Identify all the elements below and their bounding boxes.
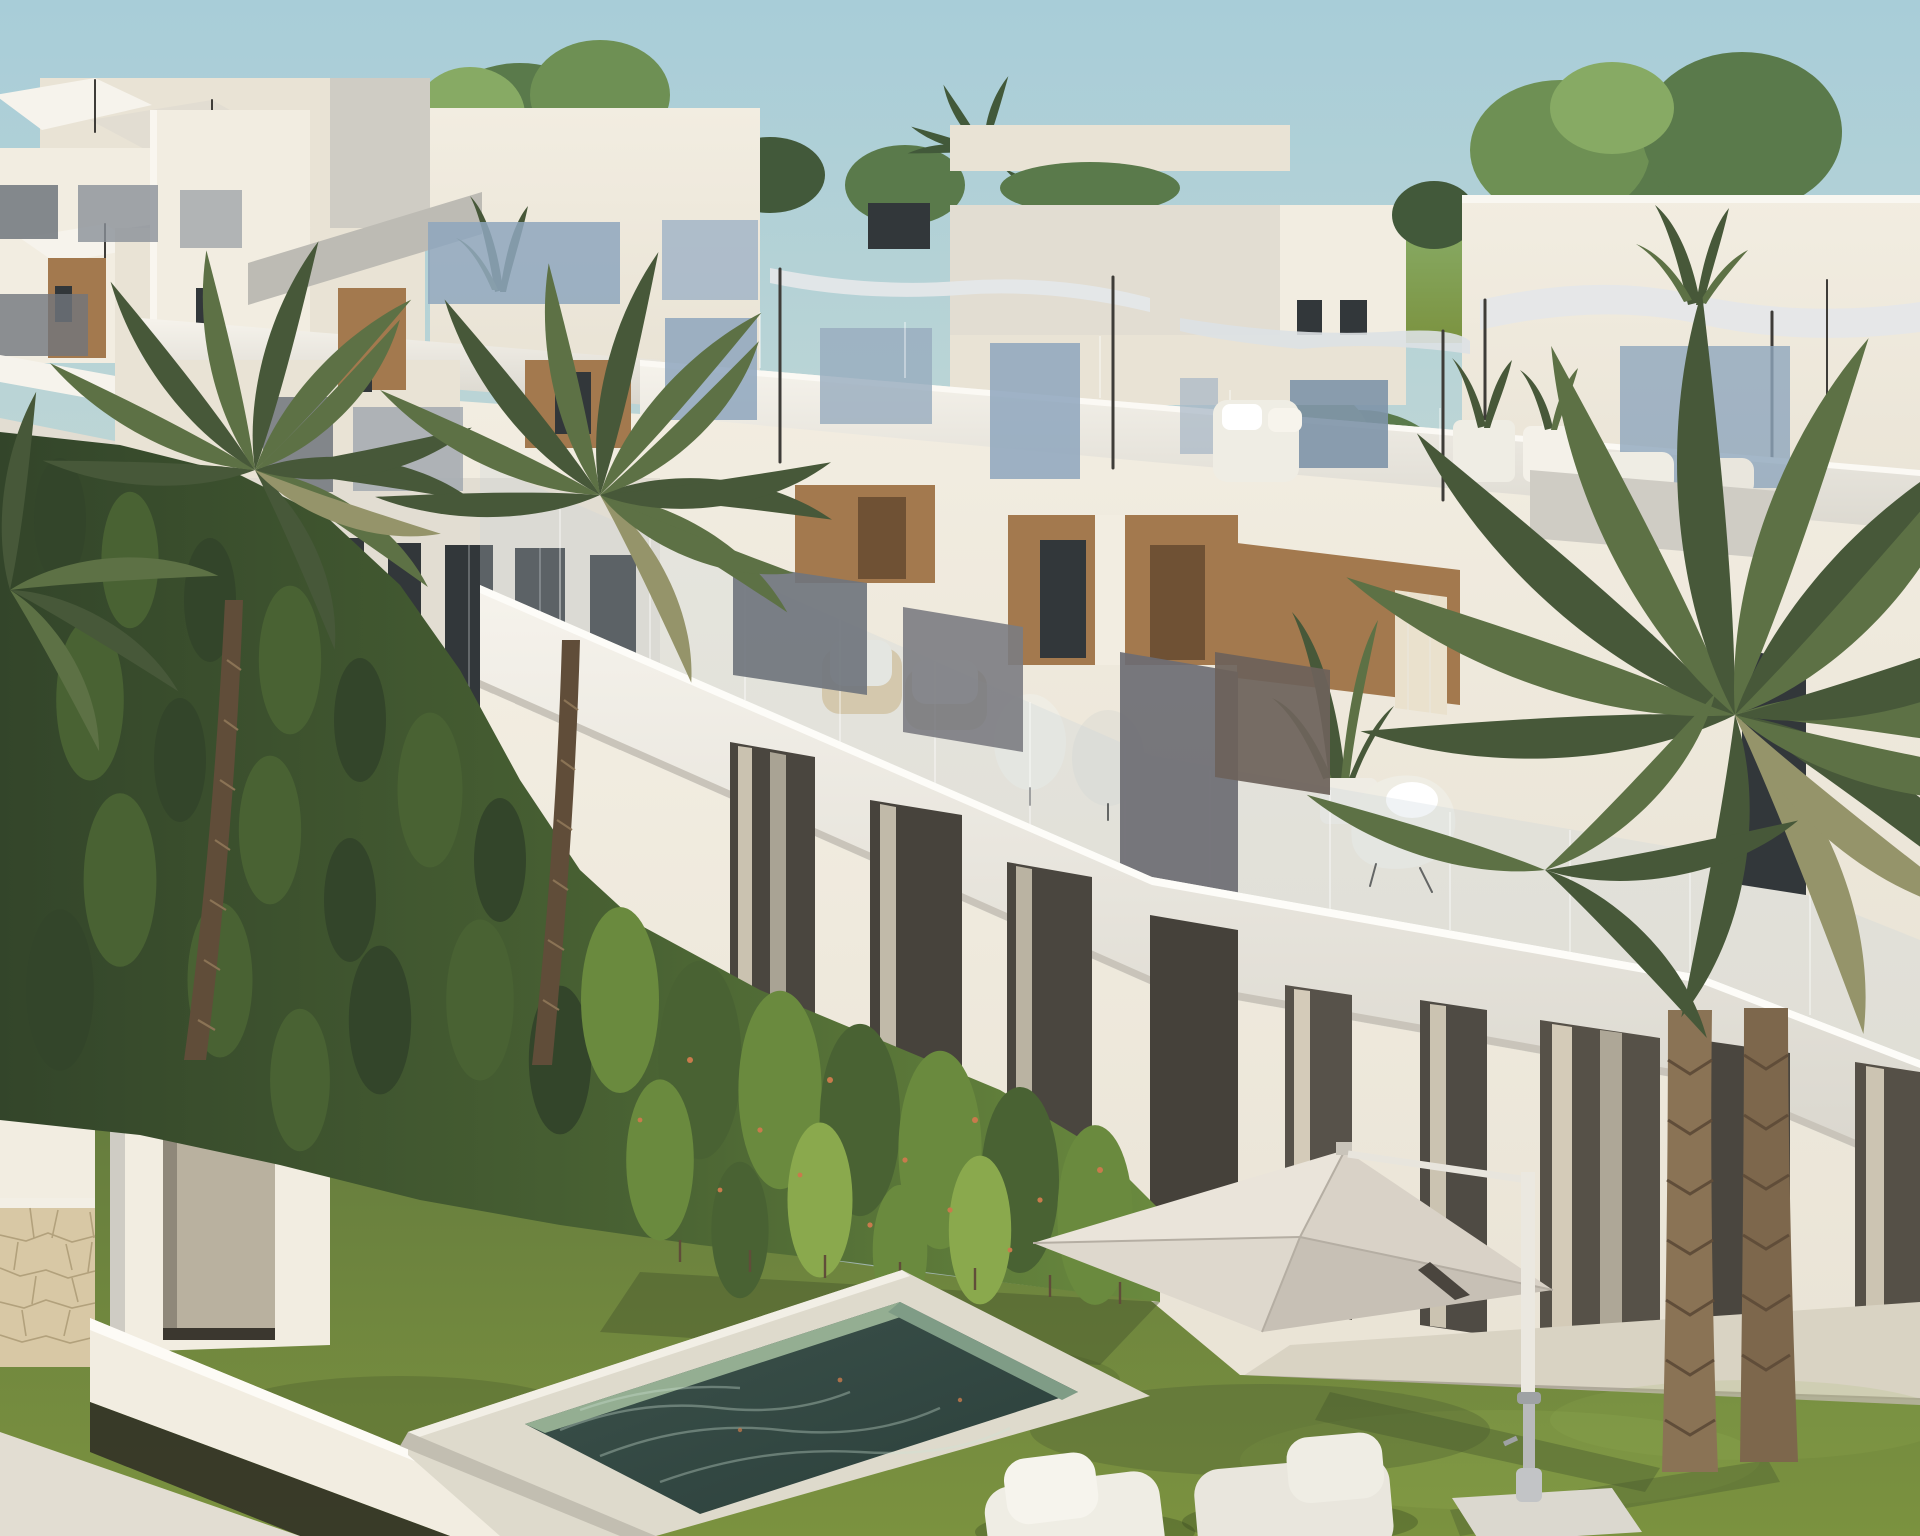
render-image [0, 0, 1920, 1536]
stone-wall [0, 1198, 95, 1367]
scene-canvas [0, 0, 1920, 1536]
umbrella-pole [1521, 1172, 1535, 1402]
